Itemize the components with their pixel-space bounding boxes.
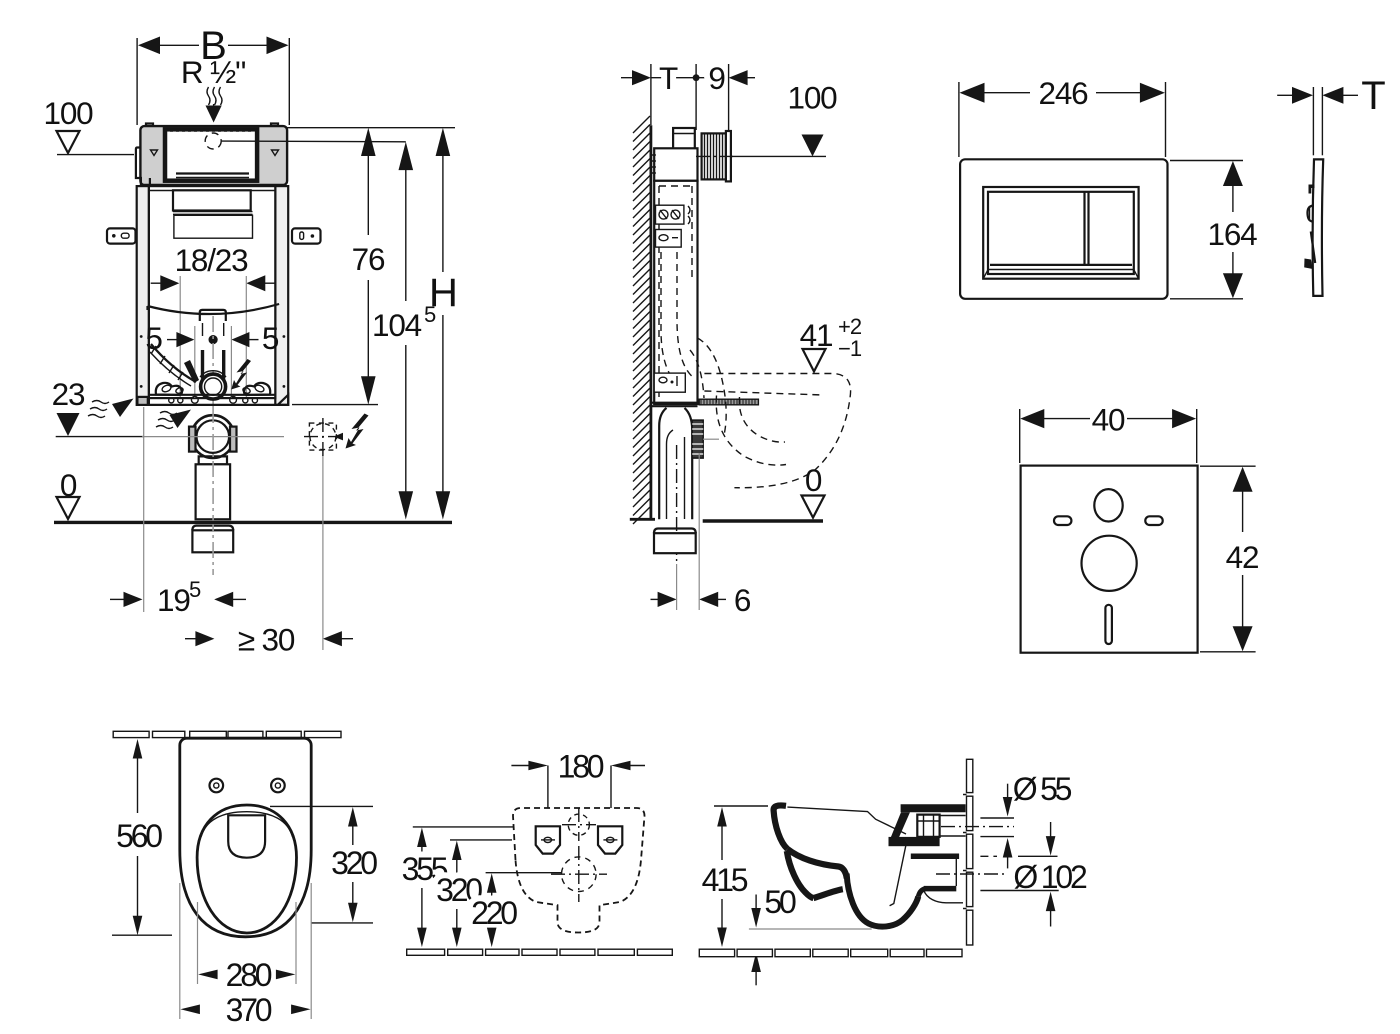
svg-text:560: 560 — [116, 818, 162, 854]
svg-text:50: 50 — [764, 884, 796, 920]
svg-text:180: 180 — [558, 749, 604, 785]
svg-text:≥ 30: ≥ 30 — [238, 622, 295, 658]
svg-text:320: 320 — [331, 845, 377, 881]
svg-text:164: 164 — [1208, 216, 1258, 252]
svg-text:18/23: 18/23 — [175, 242, 249, 278]
svg-text:370: 370 — [226, 992, 272, 1028]
svg-text:246: 246 — [1039, 75, 1089, 111]
svg-text:Ø 102: Ø 102 — [1013, 859, 1087, 895]
svg-text:100: 100 — [44, 95, 94, 131]
svg-text:R ½": R ½" — [181, 54, 245, 90]
svg-text:−1: −1 — [838, 336, 862, 361]
svg-text:100: 100 — [788, 80, 838, 116]
svg-text:220: 220 — [471, 895, 517, 931]
svg-text:5: 5 — [262, 320, 279, 356]
svg-text:5: 5 — [189, 577, 201, 602]
svg-text:Ø 55: Ø 55 — [1013, 771, 1072, 807]
svg-text:40: 40 — [1092, 402, 1125, 438]
svg-text:T: T — [659, 60, 678, 96]
svg-text:76: 76 — [352, 241, 385, 277]
svg-text:19: 19 — [157, 582, 190, 618]
svg-text:6: 6 — [734, 582, 751, 618]
svg-text:41: 41 — [800, 317, 833, 353]
svg-text:9: 9 — [708, 60, 725, 96]
svg-text:23: 23 — [52, 376, 85, 412]
svg-text:42: 42 — [1226, 539, 1259, 575]
svg-text:0: 0 — [805, 462, 822, 498]
svg-text:415: 415 — [702, 862, 748, 898]
svg-text:H: H — [429, 271, 457, 315]
svg-text:104: 104 — [372, 307, 422, 343]
svg-text:T: T — [1361, 74, 1385, 118]
svg-text:280: 280 — [226, 957, 272, 993]
